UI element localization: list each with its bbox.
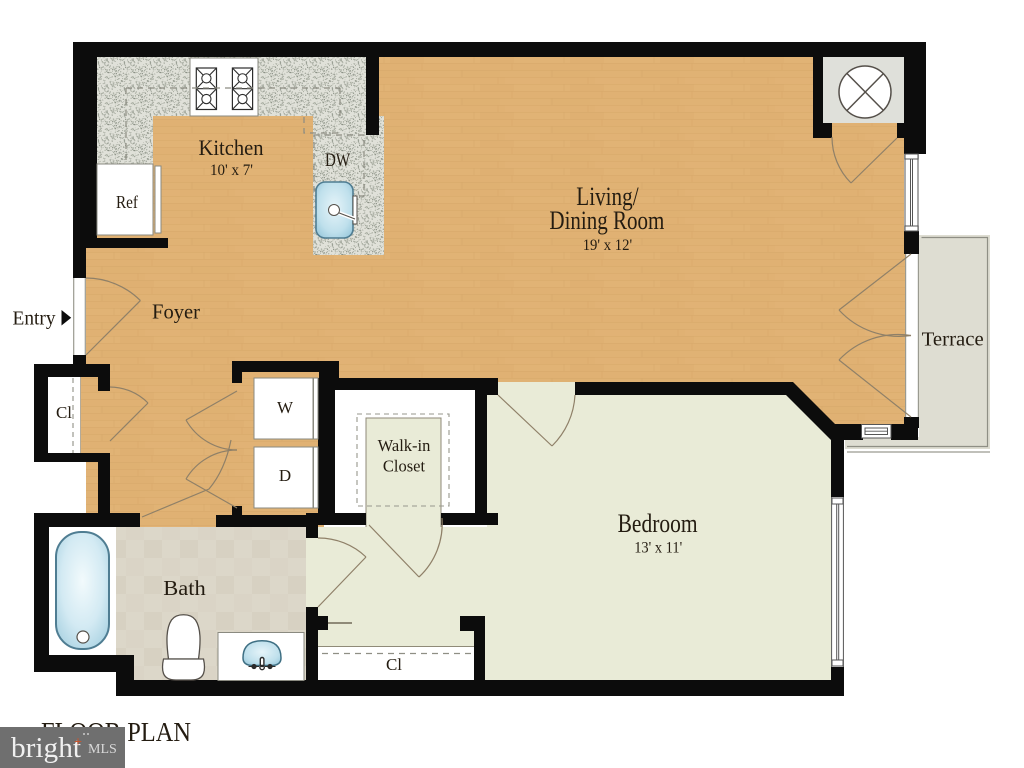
svg-text:19' x 12': 19' x 12': [583, 237, 633, 254]
svg-text:Dining Room: Dining Room: [549, 206, 664, 235]
svg-text:Closet: Closet: [383, 457, 426, 476]
svg-text:Bedroom: Bedroom: [618, 509, 698, 538]
svg-text:Terrace: Terrace: [922, 329, 984, 351]
svg-text:DW: DW: [325, 150, 350, 171]
svg-text:Bath: Bath: [163, 576, 206, 600]
svg-text:Foyer: Foyer: [152, 300, 200, 324]
svg-text:+: +: [74, 735, 82, 750]
svg-text:D: D: [279, 466, 291, 485]
svg-text:Entry: Entry: [13, 308, 57, 330]
svg-text:bright: bright: [11, 732, 81, 764]
svg-text:Ref: Ref: [116, 192, 138, 212]
svg-text:MLS: MLS: [88, 742, 117, 757]
svg-text:Cl: Cl: [56, 403, 72, 422]
svg-text:10' x 7': 10' x 7': [210, 162, 253, 179]
svg-text:Walk-in: Walk-in: [378, 436, 431, 455]
svg-text:13' x 11': 13' x 11': [634, 540, 682, 557]
svg-text:Kitchen: Kitchen: [199, 135, 264, 160]
svg-text:W: W: [277, 398, 294, 417]
svg-text:Cl: Cl: [386, 655, 402, 674]
